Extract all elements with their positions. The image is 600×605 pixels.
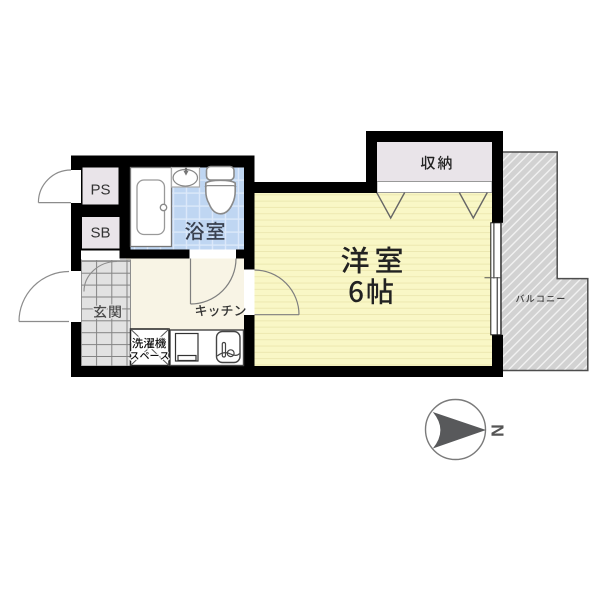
svg-text:PS: PS xyxy=(90,182,110,199)
svg-text:N: N xyxy=(488,424,508,437)
svg-text:SB: SB xyxy=(90,224,110,241)
